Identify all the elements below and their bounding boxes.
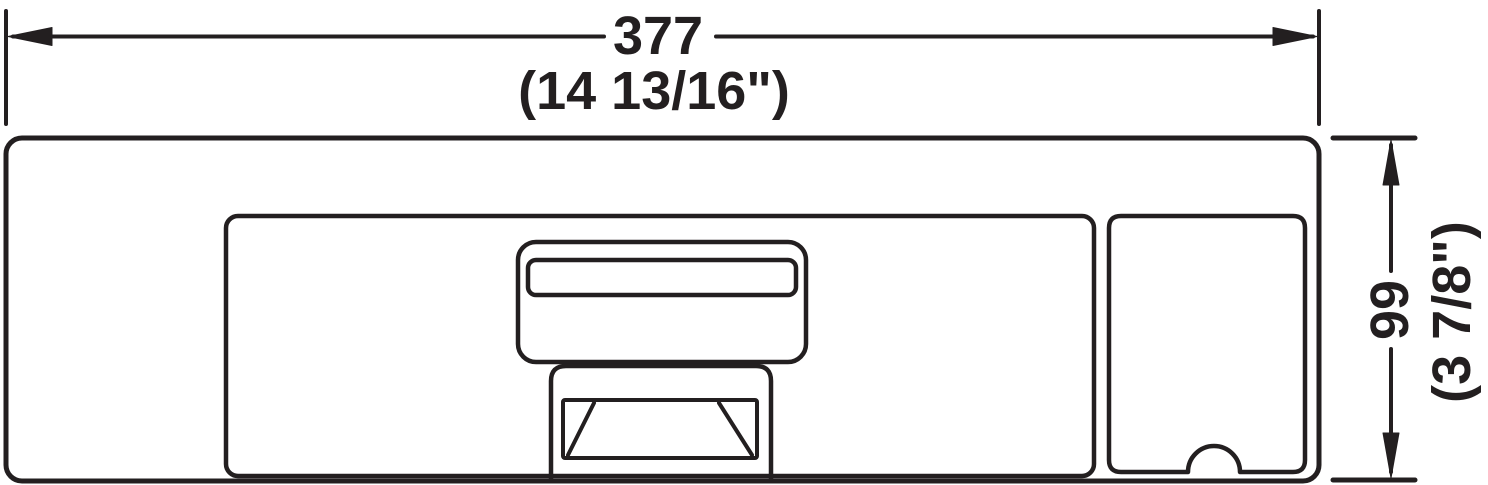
finger-recess-right-slope (719, 403, 752, 455)
height-value-imperial: (3 7/8") (1422, 221, 1482, 403)
finger-recess-left-slope (568, 403, 594, 455)
panel-drawing (6, 138, 1319, 481)
drawing-page: 377 (14 13/16") 99 (3 7/8") (0, 0, 1488, 485)
outer-panel-outline (6, 138, 1319, 481)
height-value-metric: 99 (1360, 280, 1420, 340)
height-dimension: 99 (3 7/8") (1333, 138, 1482, 480)
width-value-metric: 377 (613, 6, 703, 66)
width-dimension: 377 (14 13/16") (6, 6, 1319, 124)
handle-slot (528, 260, 796, 295)
arrowhead-up-icon (1383, 140, 1399, 185)
width-value-imperial: (14 13/16") (518, 61, 790, 121)
technical-drawing: 377 (14 13/16") 99 (3 7/8") (0, 0, 1488, 485)
arrowhead-down-icon (1383, 433, 1399, 478)
arrowhead-right-icon (1273, 28, 1317, 46)
center-inset-panel-outline (226, 216, 1094, 476)
arrowhead-left-icon (8, 28, 52, 46)
right-inset-panel-with-notch (1109, 216, 1305, 472)
